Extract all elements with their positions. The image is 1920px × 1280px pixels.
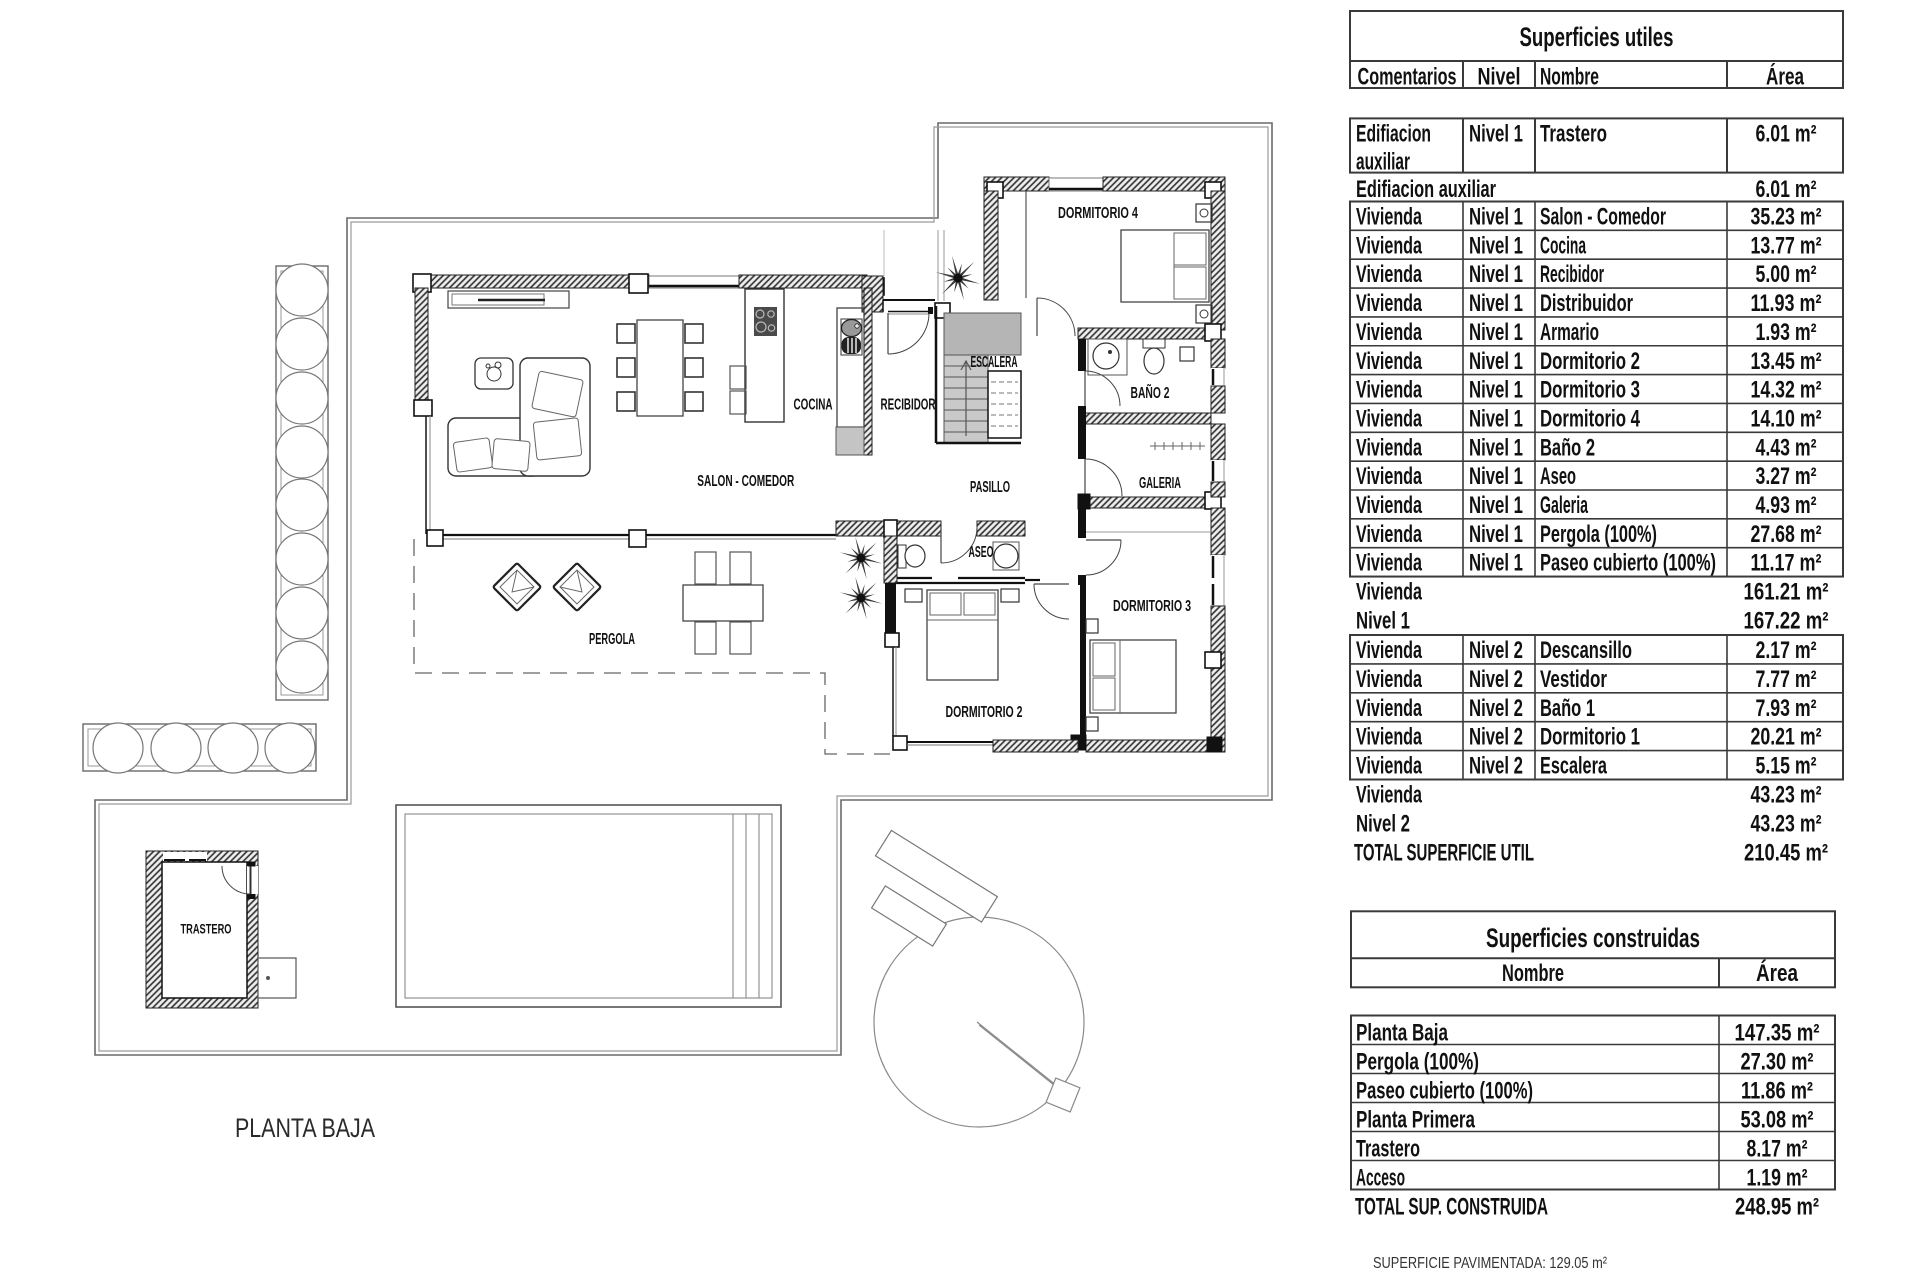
svg-text:Nivel 1: Nivel 1 — [1469, 550, 1523, 577]
svg-text:5.00 m²: 5.00 m² — [1756, 261, 1817, 288]
svg-text:BAÑO 2: BAÑO 2 — [1131, 382, 1170, 402]
svg-text:Vivienda: Vivienda — [1356, 290, 1422, 317]
svg-text:Dormitorio 3: Dormitorio 3 — [1540, 377, 1640, 404]
svg-text:14.10 m²: 14.10 m² — [1751, 405, 1822, 432]
svg-text:4.93 m²: 4.93 m² — [1756, 492, 1817, 519]
svg-text:Nivel 2: Nivel 2 — [1469, 753, 1523, 780]
svg-text:210.45 m²: 210.45 m² — [1744, 839, 1828, 866]
svg-text:5.15 m²: 5.15 m² — [1756, 753, 1817, 780]
svg-text:Dormitorio 4: Dormitorio 4 — [1540, 405, 1640, 432]
svg-text:Pergola (100%): Pergola (100%) — [1356, 1049, 1479, 1076]
svg-text:248.95 m²: 248.95 m² — [1735, 1194, 1819, 1221]
svg-text:Nivel 1: Nivel 1 — [1469, 405, 1523, 432]
svg-text:2.17 m²: 2.17 m² — [1756, 637, 1817, 664]
svg-text:Aseo: Aseo — [1540, 463, 1576, 490]
svg-text:Nivel 1: Nivel 1 — [1469, 434, 1523, 461]
svg-text:Armario: Armario — [1540, 319, 1599, 346]
svg-text:Nivel 2: Nivel 2 — [1469, 637, 1523, 664]
svg-text:11.93 m²: 11.93 m² — [1751, 290, 1822, 317]
svg-text:Comentarios: Comentarios — [1358, 64, 1457, 91]
svg-text:Vestidor: Vestidor — [1540, 666, 1607, 693]
svg-text:6.01 m²: 6.01 m² — [1756, 176, 1817, 203]
svg-text:Distribuidor: Distribuidor — [1540, 290, 1633, 317]
svg-text:Vivienda: Vivienda — [1356, 463, 1422, 490]
svg-text:Acceso: Acceso — [1356, 1165, 1405, 1192]
svg-text:20.21 m²: 20.21 m² — [1751, 724, 1822, 751]
svg-text:Baño 1: Baño 1 — [1540, 695, 1595, 722]
svg-text:3.27 m²: 3.27 m² — [1756, 463, 1817, 490]
svg-text:DORMITORIO 3: DORMITORIO 3 — [1113, 598, 1191, 615]
svg-text:Nivel 1: Nivel 1 — [1469, 120, 1523, 147]
svg-text:PASILLO: PASILLO — [970, 479, 1010, 496]
svg-text:Nivel 1: Nivel 1 — [1469, 521, 1523, 548]
svg-text:Vivienda: Vivienda — [1356, 782, 1422, 809]
svg-text:Superficies utiles: Superficies utiles — [1520, 22, 1674, 52]
svg-text:13.45 m²: 13.45 m² — [1751, 348, 1822, 375]
svg-text:1.93 m²: 1.93 m² — [1756, 319, 1817, 346]
svg-text:Galeria: Galeria — [1540, 492, 1588, 519]
svg-text:27.30 m²: 27.30 m² — [1741, 1049, 1814, 1076]
svg-text:Pergola (100%): Pergola (100%) — [1540, 521, 1657, 548]
svg-text:DORMITORIO 2: DORMITORIO 2 — [946, 704, 1023, 721]
svg-text:Superficies construidas: Superficies construidas — [1486, 923, 1700, 953]
svg-text:auxiliar: auxiliar — [1356, 148, 1410, 175]
svg-text:TOTAL SUP. CONSTRUIDA: TOTAL SUP. CONSTRUIDA — [1355, 1194, 1548, 1221]
svg-text:PLANTA BAJA: PLANTA BAJA — [235, 1113, 375, 1143]
svg-text:167.22 m²: 167.22 m² — [1744, 607, 1829, 634]
svg-text:Nivel 1: Nivel 1 — [1469, 492, 1523, 519]
svg-text:Descansillo: Descansillo — [1540, 637, 1632, 664]
svg-text:Nivel 1: Nivel 1 — [1469, 204, 1523, 231]
svg-text:Dormitorio 2: Dormitorio 2 — [1540, 348, 1640, 375]
svg-text:Vivienda: Vivienda — [1356, 204, 1422, 231]
svg-text:ASEO: ASEO — [969, 544, 994, 561]
svg-text:43.23 m²: 43.23 m² — [1751, 810, 1822, 837]
svg-text:Nivel 2: Nivel 2 — [1356, 810, 1410, 837]
svg-text:Planta Primera: Planta Primera — [1356, 1107, 1475, 1134]
svg-text:Vivienda: Vivienda — [1356, 377, 1422, 404]
svg-text:Vivienda: Vivienda — [1356, 695, 1422, 722]
svg-text:Vivienda: Vivienda — [1356, 724, 1422, 751]
svg-text:Vivienda: Vivienda — [1356, 666, 1422, 693]
svg-text:Nivel 1: Nivel 1 — [1469, 463, 1523, 490]
svg-text:8.17 m²: 8.17 m² — [1747, 1136, 1808, 1163]
svg-text:35.23 m²: 35.23 m² — [1751, 204, 1822, 231]
svg-text:Nivel 2: Nivel 2 — [1469, 695, 1523, 722]
svg-text:7.93 m²: 7.93 m² — [1756, 695, 1817, 722]
svg-text:14.32 m²: 14.32 m² — [1751, 377, 1822, 404]
svg-text:DORMITORIO 4: DORMITORIO 4 — [1058, 205, 1138, 222]
svg-text:TRASTERO: TRASTERO — [181, 922, 232, 937]
svg-text:Nivel: Nivel — [1478, 64, 1521, 91]
svg-text:11.17 m²: 11.17 m² — [1751, 550, 1822, 577]
svg-text:Vivienda: Vivienda — [1356, 232, 1422, 259]
svg-text:Edifiacion auxiliar: Edifiacion auxiliar — [1356, 176, 1496, 203]
svg-text:Nivel 2: Nivel 2 — [1469, 666, 1523, 693]
svg-text:Nombre: Nombre — [1502, 960, 1564, 987]
svg-text:Vivienda: Vivienda — [1356, 550, 1422, 577]
svg-text:Nombre: Nombre — [1540, 64, 1599, 91]
svg-text:Vivienda: Vivienda — [1356, 405, 1422, 432]
svg-text:27.68 m²: 27.68 m² — [1751, 521, 1822, 548]
svg-text:RECIBIDOR: RECIBIDOR — [881, 397, 936, 414]
svg-text:Vivienda: Vivienda — [1356, 348, 1422, 375]
svg-text:147.35 m²: 147.35 m² — [1735, 1020, 1820, 1047]
svg-text:TOTAL SUPERFICIE UTIL: TOTAL SUPERFICIE UTIL — [1354, 839, 1534, 866]
svg-text:Vivienda: Vivienda — [1356, 753, 1422, 780]
svg-text:1.19 m²: 1.19 m² — [1747, 1165, 1808, 1192]
svg-text:Escalera: Escalera — [1540, 753, 1607, 780]
svg-text:Nivel 1: Nivel 1 — [1469, 261, 1523, 288]
svg-text:53.08 m²: 53.08 m² — [1741, 1107, 1814, 1134]
svg-text:Salon - Comedor: Salon - Comedor — [1540, 204, 1666, 231]
svg-text:Vivienda: Vivienda — [1356, 521, 1422, 548]
svg-text:COCINA: COCINA — [794, 397, 833, 414]
svg-text:Nivel 1: Nivel 1 — [1356, 607, 1410, 634]
svg-text:7.77 m²: 7.77 m² — [1756, 666, 1817, 693]
svg-text:Nivel 1: Nivel 1 — [1469, 319, 1523, 346]
svg-text:161.21 m²: 161.21 m² — [1744, 579, 1829, 606]
svg-text:Nivel 1: Nivel 1 — [1469, 377, 1523, 404]
svg-text:Área: Área — [1766, 63, 1804, 91]
svg-text:SUPERFICIE PAVIMENTADA: 129.05: SUPERFICIE PAVIMENTADA: 129.05 m² — [1373, 1255, 1608, 1272]
svg-text:Dormitorio 1: Dormitorio 1 — [1540, 724, 1640, 751]
svg-text:Trastero: Trastero — [1540, 120, 1607, 147]
svg-text:Edifiacion: Edifiacion — [1356, 120, 1431, 147]
svg-text:Planta Baja: Planta Baja — [1356, 1020, 1448, 1047]
svg-text:Área: Área — [1756, 959, 1799, 987]
svg-text:ESCALERA: ESCALERA — [971, 354, 1018, 371]
svg-text:Cocina: Cocina — [1540, 232, 1586, 259]
svg-text:13.77 m²: 13.77 m² — [1751, 232, 1822, 259]
svg-text:43.23 m²: 43.23 m² — [1751, 782, 1822, 809]
svg-text:SALON - COMEDOR: SALON - COMEDOR — [697, 473, 794, 490]
svg-text:Nivel 2: Nivel 2 — [1469, 724, 1523, 751]
svg-text:Baño 2: Baño 2 — [1540, 434, 1595, 461]
svg-text:Recibidor: Recibidor — [1540, 261, 1604, 288]
svg-text:Nivel 1: Nivel 1 — [1469, 348, 1523, 375]
svg-text:Vivienda: Vivienda — [1356, 579, 1422, 606]
svg-text:GALERIA: GALERIA — [1139, 475, 1181, 492]
svg-text:PERGOLA: PERGOLA — [589, 631, 635, 648]
svg-text:11.86 m²: 11.86 m² — [1741, 1078, 1813, 1105]
svg-text:Trastero: Trastero — [1356, 1136, 1420, 1163]
svg-text:Vivienda: Vivienda — [1356, 261, 1422, 288]
svg-text:Vivienda: Vivienda — [1356, 319, 1422, 346]
svg-text:Nivel 1: Nivel 1 — [1469, 290, 1523, 317]
svg-text:Vivienda: Vivienda — [1356, 637, 1422, 664]
svg-text:Vivienda: Vivienda — [1356, 492, 1422, 519]
svg-text:4.43 m²: 4.43 m² — [1756, 434, 1817, 461]
svg-text:Paseo cubierto (100%): Paseo cubierto (100%) — [1356, 1078, 1533, 1105]
svg-text:6.01 m²: 6.01 m² — [1756, 120, 1817, 147]
svg-text:Paseo cubierto (100%): Paseo cubierto (100%) — [1540, 550, 1716, 577]
svg-text:Vivienda: Vivienda — [1356, 434, 1422, 461]
svg-text:Nivel 1: Nivel 1 — [1469, 232, 1523, 259]
